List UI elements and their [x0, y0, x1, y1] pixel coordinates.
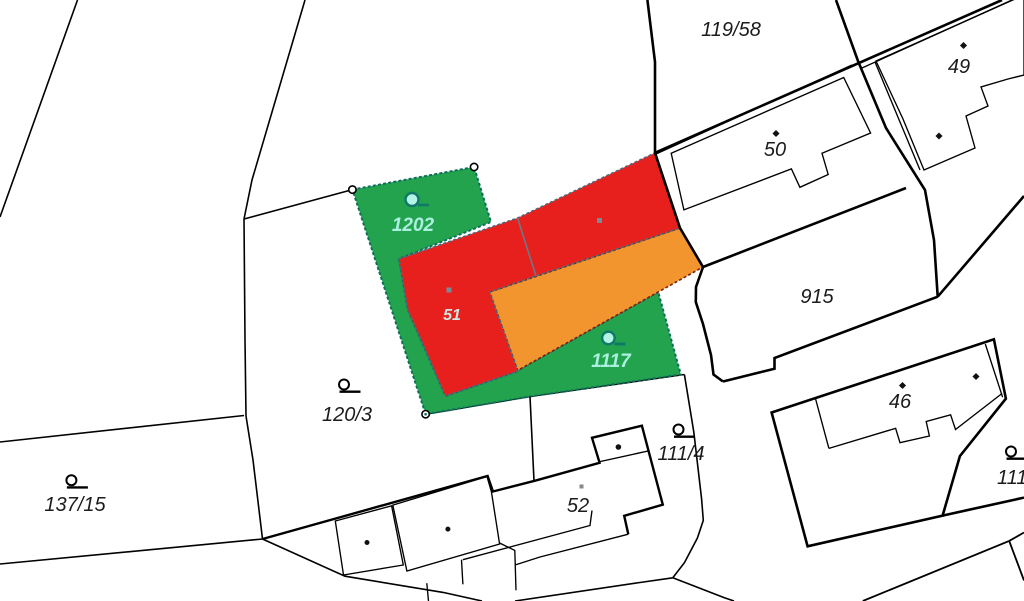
svg-text:137/15: 137/15	[44, 494, 106, 516]
svg-text:51: 51	[443, 307, 461, 324]
svg-text:120/3: 120/3	[322, 404, 372, 426]
svg-text:50: 50	[764, 139, 786, 161]
svg-text:111/4: 111/4	[657, 443, 704, 465]
svg-text:1117: 1117	[591, 351, 632, 372]
svg-text:46: 46	[889, 391, 912, 413]
svg-text:915: 915	[800, 286, 834, 308]
svg-text:111/: 111/	[997, 467, 1024, 489]
svg-text:119/58: 119/58	[701, 19, 761, 41]
svg-text:49: 49	[948, 56, 970, 78]
svg-text:52: 52	[567, 495, 589, 517]
svg-text:1202: 1202	[392, 215, 435, 236]
